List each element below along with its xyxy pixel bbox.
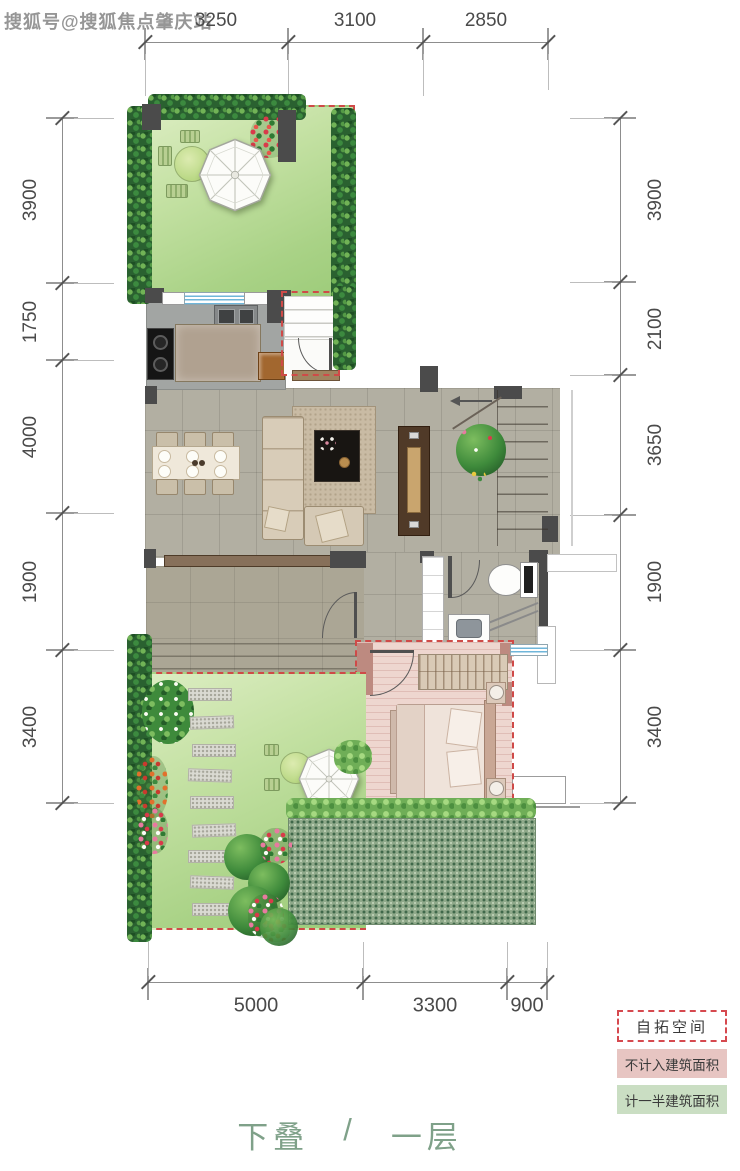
extension-line — [74, 803, 114, 804]
dim-label: 3900 — [20, 179, 42, 221]
stove-icon — [147, 328, 174, 380]
living-window-sill — [164, 555, 332, 567]
wall-segment — [420, 366, 438, 392]
title-floor: 一层 — [391, 1112, 463, 1157]
wall-segment — [144, 549, 156, 568]
dim-line — [145, 42, 548, 43]
dim-label: 3400 — [20, 706, 42, 748]
dim-label: 3900 — [645, 179, 667, 221]
dim-label: 1900 — [20, 561, 42, 603]
dim-label: 3250 — [195, 10, 237, 32]
sink-basin — [239, 309, 254, 324]
stepping-stone — [192, 744, 236, 757]
place-setting — [186, 465, 199, 478]
extension-line — [570, 650, 612, 651]
patio-steps — [146, 632, 364, 674]
legend-item-expand-space: 自拓空间 — [617, 1010, 727, 1042]
stepping-stone — [190, 715, 234, 730]
garden-chair — [166, 184, 188, 198]
dining-chair — [156, 479, 178, 495]
title-separator: / — [343, 1112, 357, 1157]
building-edge-line — [571, 390, 573, 546]
legend-label: 计一半建筑面积 — [625, 1090, 720, 1110]
legend-item-half-counted-area: 计一半建筑面积 — [617, 1085, 727, 1114]
extension-line — [570, 375, 612, 376]
stepping-stone — [190, 875, 234, 890]
table-flowers — [319, 436, 336, 451]
burner — [153, 335, 168, 350]
coffee-table — [314, 430, 360, 482]
stair-direction-arrow — [458, 400, 492, 402]
floorplan-page: 搜狐号@搜狐焦点肇庆站 3250 3100 2850 3900 1750 400… — [0, 0, 740, 1171]
dining-chair — [212, 479, 234, 495]
dim-label: 1900 — [645, 561, 667, 603]
bedroom-window-right — [510, 644, 548, 656]
extension-line — [288, 54, 289, 96]
extension-line — [547, 942, 548, 976]
dining-chair — [184, 479, 206, 495]
basin — [456, 619, 482, 638]
dim-line — [62, 118, 63, 803]
tv-panel — [407, 447, 421, 513]
extension-line — [363, 942, 364, 976]
centerpiece — [199, 460, 205, 466]
hedge-entry — [333, 286, 356, 370]
title-unit-type: 下叠 — [237, 1112, 309, 1157]
wall-column — [142, 104, 161, 130]
place-setting — [158, 450, 171, 463]
entry-expand-zone — [281, 291, 340, 376]
dim-label: 1750 — [20, 301, 42, 343]
toilet-icon — [488, 564, 524, 596]
dim-label: 3400 — [645, 706, 667, 748]
watermark: 搜狐号@搜狐焦点肇庆站 — [4, 8, 213, 34]
staircase — [497, 390, 548, 546]
extension-line — [74, 118, 114, 119]
extension-line — [507, 942, 508, 976]
flower-cluster — [260, 828, 292, 864]
extension-line — [423, 54, 424, 96]
legend-label: 不计入建筑面积 — [625, 1054, 720, 1074]
wall-segment — [162, 292, 186, 305]
extension-line — [74, 513, 114, 514]
extension-line — [570, 515, 612, 516]
stair-arrowhead — [450, 396, 460, 406]
toilet-tank — [520, 562, 538, 598]
tank-lid — [524, 566, 533, 593]
stepping-stone — [192, 823, 236, 838]
tree — [260, 908, 298, 946]
garden-chair — [180, 130, 200, 143]
exterior-ledge — [547, 554, 617, 572]
wall-segment — [330, 551, 366, 568]
garden-chair — [264, 744, 279, 756]
kitchen-window — [184, 292, 246, 305]
stepping-stone — [190, 796, 234, 809]
console-item — [409, 432, 419, 439]
dim-label: 4000 — [20, 416, 42, 458]
stepping-stone — [188, 768, 232, 783]
legend-item-not-counted-area: 不计入建筑面积 — [617, 1049, 727, 1078]
extension-line — [145, 54, 146, 96]
extension-line — [74, 360, 114, 361]
yellow-flowers — [470, 470, 486, 484]
place-setting — [214, 450, 227, 463]
burner — [153, 357, 168, 372]
dim-line — [148, 982, 547, 983]
garden-chair — [264, 778, 280, 791]
hallway-floor — [358, 552, 426, 646]
dim-label: 2100 — [645, 308, 667, 350]
table-bowl — [339, 457, 350, 468]
sink-basin — [218, 309, 235, 324]
legend-label: 自拓空间 — [636, 1016, 708, 1037]
dim-line — [620, 118, 621, 803]
shrub-strip — [286, 798, 536, 820]
kitchen-island — [175, 324, 261, 382]
extension-line — [570, 118, 612, 119]
bedroom-expand-zone — [355, 640, 514, 810]
extension-line — [570, 803, 612, 804]
dim-label: 3100 — [334, 10, 376, 32]
extension-line — [74, 650, 114, 651]
parasol-icon — [198, 138, 272, 212]
console-item — [409, 521, 419, 528]
bathroom-cabinet — [422, 556, 444, 644]
patio-door-leaf — [354, 592, 357, 638]
extension-line — [74, 283, 114, 284]
hedge-right — [331, 108, 356, 310]
extension-line — [570, 282, 612, 283]
extension-line — [548, 54, 549, 90]
tv-console — [398, 426, 430, 536]
half-area-terrace — [288, 818, 536, 925]
dim-label: 3650 — [645, 424, 667, 466]
dim-label: 900 — [510, 995, 543, 1018]
dim-label: 3300 — [413, 995, 458, 1018]
dining-table — [152, 446, 240, 480]
garden-chair — [158, 146, 172, 166]
garden-bush — [334, 740, 372, 774]
centerpiece — [192, 460, 198, 466]
indoor-plant — [456, 424, 506, 476]
dim-label: 2850 — [465, 10, 507, 32]
extension-line — [148, 942, 149, 976]
place-setting — [214, 465, 227, 478]
stepping-stone — [188, 688, 232, 701]
wall-column — [278, 110, 296, 162]
pink-flowers — [138, 808, 168, 854]
hedge-left — [127, 106, 152, 304]
place-setting — [158, 465, 171, 478]
dim-label: 5000 — [234, 995, 279, 1018]
flowering-bush — [142, 680, 194, 744]
pillow — [264, 506, 290, 532]
plan-title: 下叠 / 一层 — [175, 1112, 525, 1157]
wall-segment — [145, 386, 157, 404]
